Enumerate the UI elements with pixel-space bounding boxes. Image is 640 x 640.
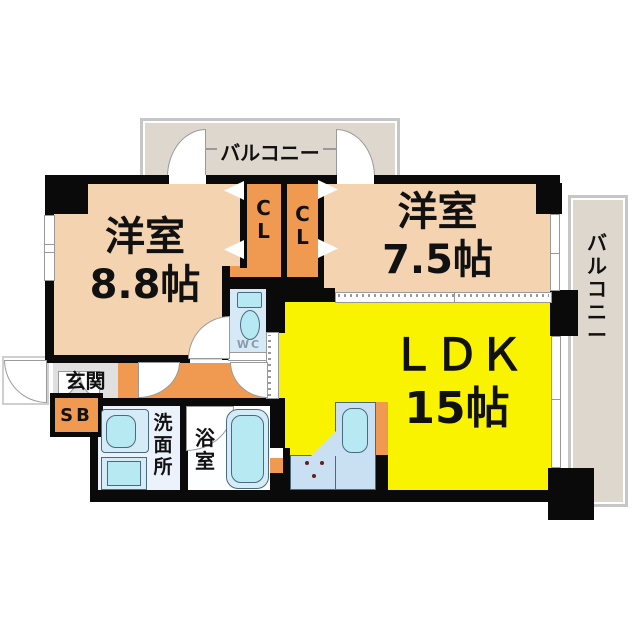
closet-left-label: CL bbox=[246, 197, 281, 243]
ldk-label: ＬＤＫ 15帖 bbox=[352, 330, 562, 436]
washbasin-bowl bbox=[106, 415, 136, 448]
wall bbox=[375, 455, 388, 490]
shoe-box: SB bbox=[50, 393, 103, 437]
sliding-door-bedroom-right bbox=[335, 292, 552, 303]
bedroom-right-label: 洋室 7.5帖 bbox=[330, 188, 545, 284]
niche-white bbox=[270, 448, 283, 458]
toilet-bowl bbox=[240, 310, 260, 340]
toilet-tank bbox=[237, 292, 262, 308]
wall bbox=[45, 175, 560, 184]
balcony-opening-right bbox=[337, 175, 374, 184]
bedroom-left-label: 洋室 8.8帖 bbox=[55, 213, 235, 309]
window-bedroom-right bbox=[550, 214, 560, 291]
wc-sill bbox=[228, 352, 269, 361]
stove-burner bbox=[320, 461, 324, 465]
stove-burner bbox=[312, 474, 316, 478]
closet-right-label: CL bbox=[287, 203, 318, 249]
bathroom-label: 浴室 bbox=[193, 427, 217, 473]
washing-machine bbox=[107, 461, 141, 486]
stove-burner bbox=[305, 461, 309, 465]
wall bbox=[318, 183, 324, 288]
balcony-top-label: バルコニー bbox=[217, 141, 323, 165]
wall bbox=[283, 288, 335, 302]
washroom-label: 洗面所 bbox=[150, 413, 176, 479]
wall bbox=[270, 398, 285, 448]
wall bbox=[90, 398, 285, 406]
kitchen-counter-horizontal bbox=[290, 455, 336, 490]
window-left bbox=[44, 215, 55, 281]
entrance-label: 玄関 bbox=[53, 363, 118, 396]
shoe-box-label: SB bbox=[60, 405, 93, 426]
niche-orange bbox=[270, 458, 283, 473]
pillar-bottom-right bbox=[548, 468, 594, 520]
floor-plan: バルコニー バルコニー bbox=[0, 0, 640, 640]
wc-label: WC bbox=[230, 338, 268, 351]
balcony-opening-left bbox=[169, 175, 206, 184]
wall-bottom bbox=[90, 490, 560, 502]
bathtub-inner bbox=[231, 415, 264, 483]
